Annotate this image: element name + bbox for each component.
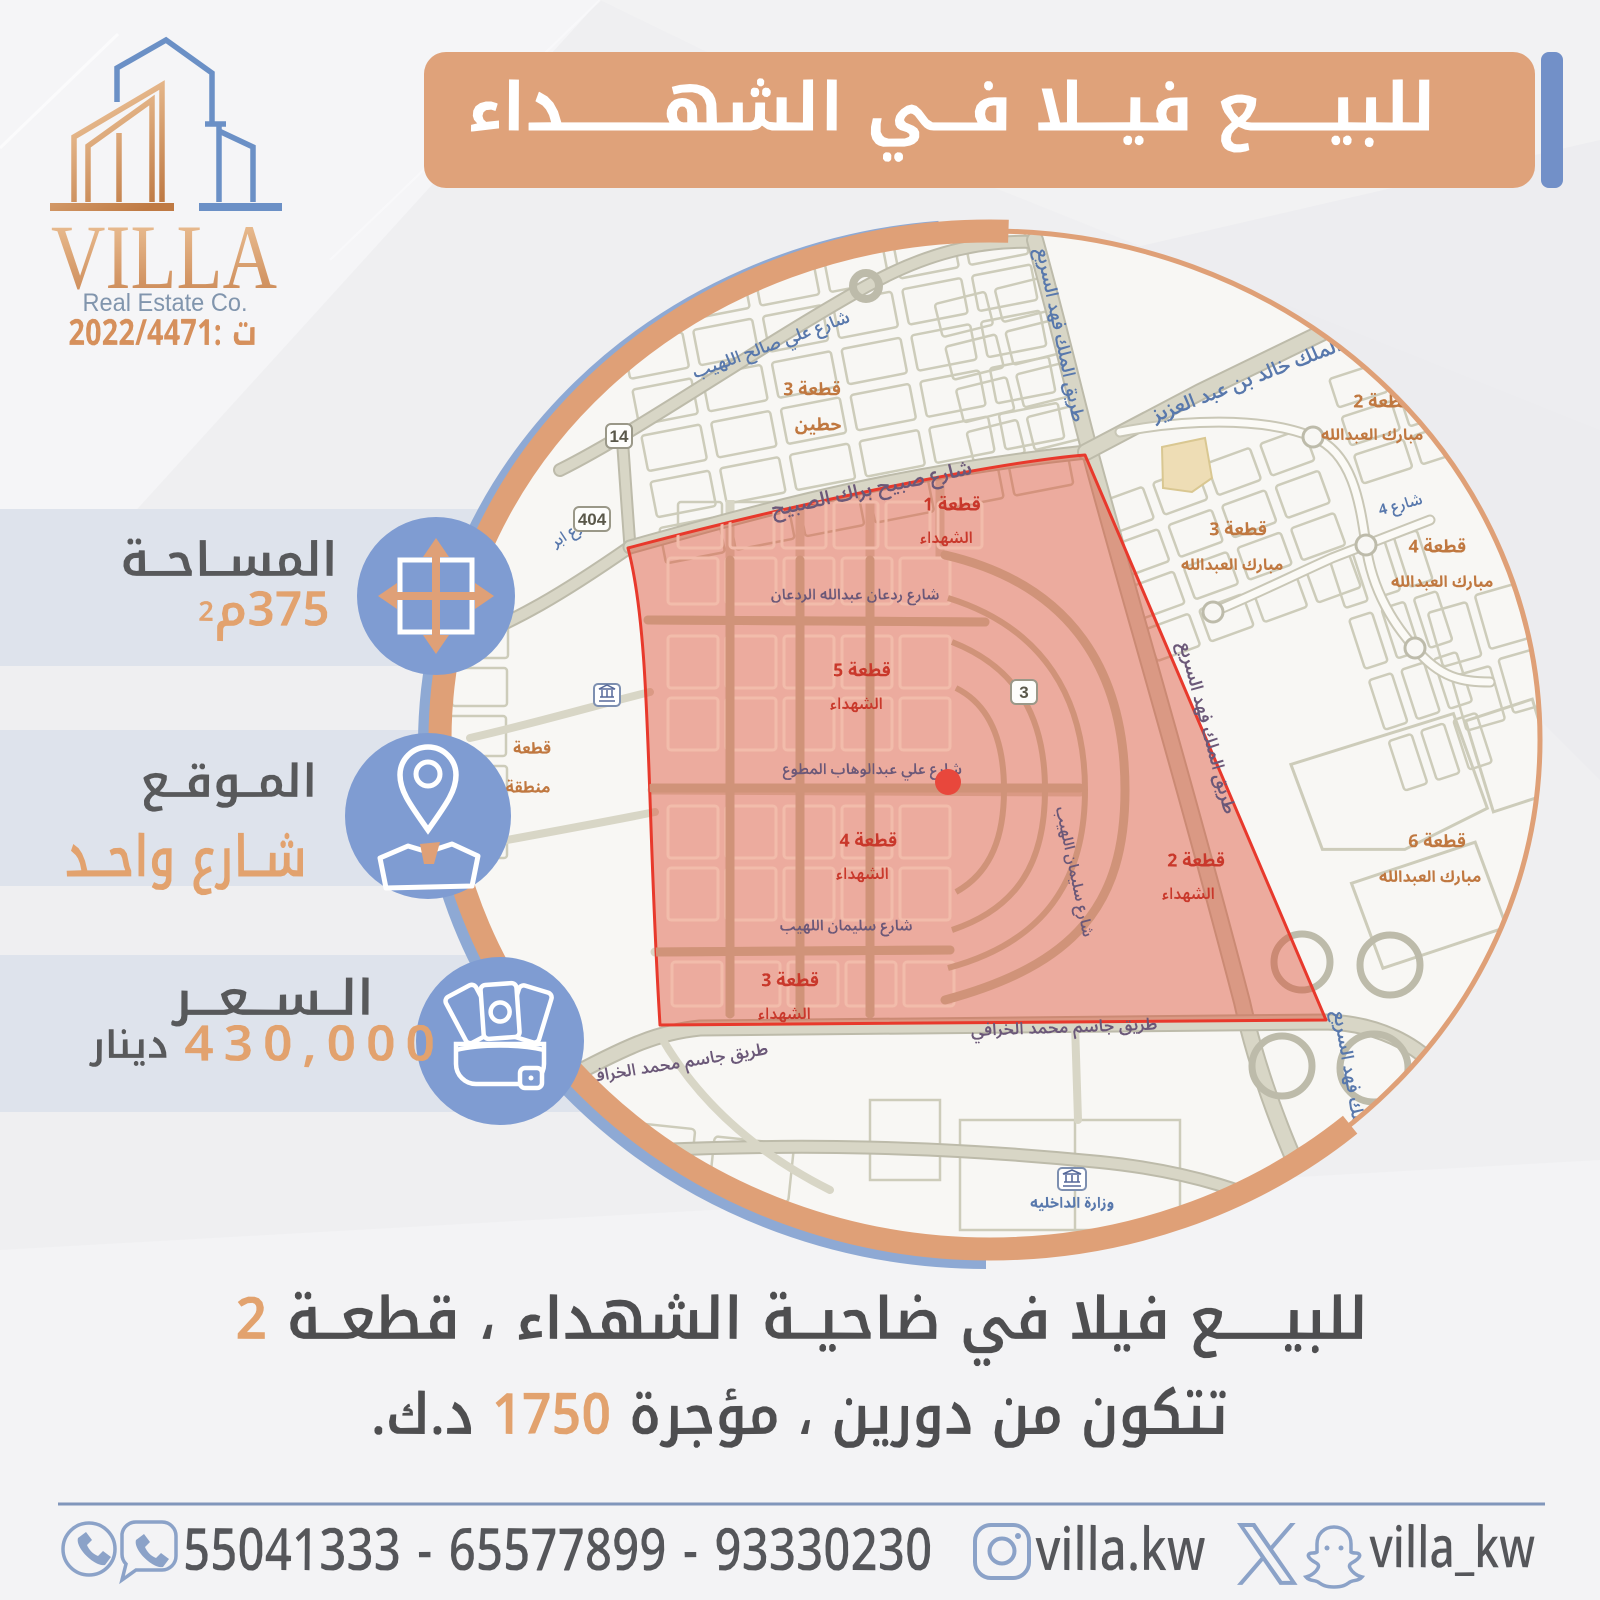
svg-text:14: 14 bbox=[610, 427, 629, 446]
svg-text:3: 3 bbox=[1019, 683, 1028, 702]
svg-text:404: 404 bbox=[578, 510, 607, 529]
svg-text:Real Estate Co.: Real Estate Co. bbox=[83, 289, 248, 317]
